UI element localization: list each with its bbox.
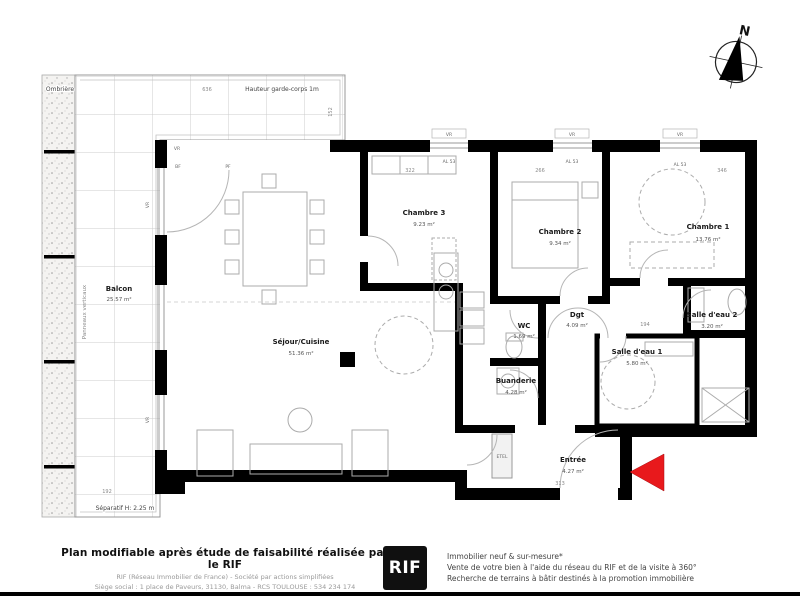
room-chambre3: Chambre 3 — [403, 209, 446, 217]
north-label: N — [738, 23, 752, 40]
dim-194: 194 — [640, 322, 650, 328]
svg-text:25.57 m²: 25.57 m² — [106, 296, 131, 303]
svg-text:VR: VR — [569, 132, 575, 138]
room-buanderie: Buanderie — [496, 377, 537, 385]
window-label-pf: PF — [225, 164, 231, 170]
rif-logo: RIF — [383, 546, 427, 590]
room-entree: Entrée — [560, 456, 586, 464]
svg-text:1.69 m²: 1.69 m² — [513, 333, 535, 340]
dim-636: 636 — [202, 87, 212, 93]
svg-text:5.80 m²: 5.80 m² — [626, 360, 648, 367]
svg-text:3.20 m²: 3.20 m² — [701, 323, 723, 330]
svg-text:VR: VR — [174, 146, 180, 152]
garde-corps-label: Hauteur garde-corps 1m — [245, 86, 319, 93]
dim-313: 313 — [555, 481, 565, 487]
dim-152: 152 — [328, 107, 334, 117]
compass: N — [704, 18, 771, 94]
room-chambre1: Chambre 1 — [687, 223, 730, 231]
footer-company-line2: Siège social : 1 place de Paveurs, 31130… — [55, 583, 395, 591]
svg-text:VR: VR — [145, 417, 151, 423]
svg-text:AL 53: AL 53 — [566, 159, 579, 165]
svg-text:VR: VR — [145, 202, 151, 208]
dim-192: 192 — [102, 489, 112, 495]
service-line: Recherche de terrains à bâtir destinés à… — [447, 573, 707, 584]
window-label-vr: VR — [446, 132, 452, 138]
footer-services: Immobilier neuf & sur-mesure* Vente de v… — [447, 551, 707, 584]
floor-plan-svg: Ombrière 636 Hauteur garde-corps 1m 152 … — [0, 0, 800, 540]
svg-text:4.09 m²: 4.09 m² — [566, 322, 588, 329]
svg-text:13.76 m²: 13.76 m² — [695, 236, 720, 243]
dim-322: 322 — [405, 168, 415, 174]
room-wc: WC — [518, 322, 531, 330]
window-label-bf: BF — [175, 164, 181, 170]
footer-disclaimer: Plan modifiable après étude de faisabili… — [55, 547, 395, 571]
svg-text:9.34 m²: 9.34 m² — [549, 240, 571, 247]
svg-text:AL 53: AL 53 — [674, 162, 687, 168]
svg-text:51.36 m²: 51.36 m² — [288, 350, 313, 357]
rif-logo-text: RIF — [389, 558, 422, 578]
room-sejour: Séjour/Cuisine — [273, 338, 330, 346]
separatif-label: Séparatif H: 2.25 m — [96, 505, 155, 512]
footer: Plan modifiable après étude de faisabili… — [0, 540, 800, 596]
service-line: Vente de votre bien à l'aide du réseau d… — [447, 562, 707, 573]
svg-text:4.28 m²: 4.28 m² — [505, 389, 527, 396]
room-salle-eau-2: Salle d'eau 2 — [687, 311, 738, 319]
svg-text:4.27 m²: 4.27 m² — [562, 468, 584, 475]
room-chambre2: Chambre 2 — [539, 228, 582, 236]
bottom-bar — [0, 592, 800, 596]
ombriere-label: Ombrière — [46, 86, 75, 93]
etel-label: ETEL — [497, 454, 508, 460]
floor-plan-sheet: Ombrière 636 Hauteur garde-corps 1m 152 … — [0, 0, 800, 600]
footer-company-line1: RIF (Réseau Immobilier de France) - Soci… — [55, 573, 395, 581]
service-line: Immobilier neuf & sur-mesure* — [447, 551, 707, 562]
panneaux-label: Panneaux verticaux — [82, 284, 88, 339]
room-balcon: Balcon — [106, 285, 132, 293]
room-dgt: Dgt — [570, 311, 585, 319]
shade-strip — [42, 75, 75, 517]
room-salle-eau-1: Salle d'eau 1 — [612, 348, 663, 356]
svg-text:9.23 m²: 9.23 m² — [413, 221, 435, 228]
footer-left: Plan modifiable après étude de faisabili… — [55, 547, 395, 591]
dim-346: 346 — [717, 168, 727, 174]
svg-text:VR: VR — [677, 132, 683, 138]
dim-266: 266 — [535, 168, 545, 174]
window-label-al53: AL 53 — [443, 159, 456, 165]
